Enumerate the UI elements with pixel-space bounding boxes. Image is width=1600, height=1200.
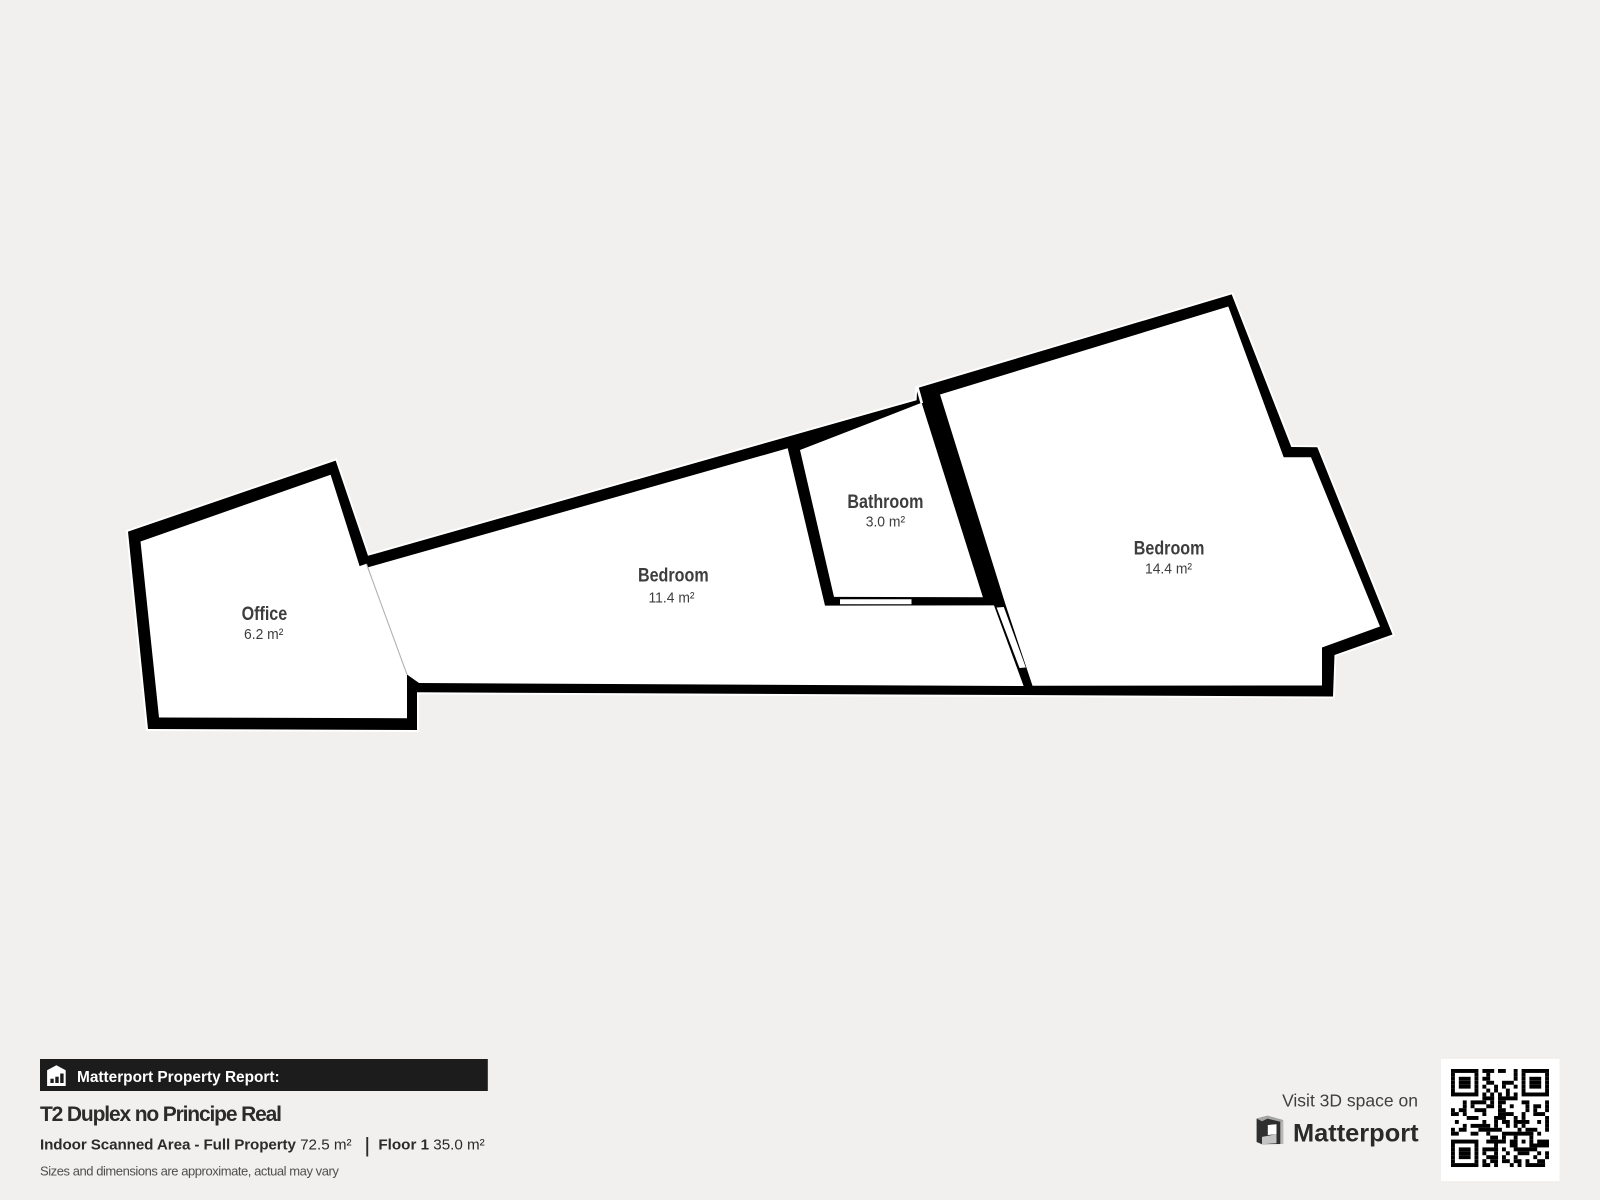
svg-text:Office: Office	[242, 603, 288, 625]
svg-text:Indoor Scanned Area - Full Pro: Indoor Scanned Area - Full Property 72.5…	[40, 1137, 352, 1154]
svg-text:Bedroom: Bedroom	[638, 564, 709, 586]
svg-text:14.4 m²: 14.4 m²	[1145, 561, 1192, 578]
svg-text:Matterport: Matterport	[1293, 1119, 1419, 1147]
svg-text:Floor 1 35.0 m²: Floor 1 35.0 m²	[378, 1137, 484, 1154]
svg-text:3.0 m²: 3.0 m²	[866, 514, 906, 531]
svg-text:Visit 3D space on: Visit 3D space on	[1282, 1091, 1418, 1111]
svg-text:Matterport Property Report:: Matterport Property Report:	[77, 1069, 280, 1086]
svg-text:Bathroom: Bathroom	[847, 491, 923, 513]
svg-text:Bedroom: Bedroom	[1134, 537, 1205, 559]
svg-text:T2 Duplex no Principe Real: T2 Duplex no Principe Real	[40, 1103, 281, 1126]
svg-text:11.4 m²: 11.4 m²	[648, 590, 694, 607]
svg-text:6.2 m²: 6.2 m²	[244, 627, 284, 644]
svg-text:Sizes and dimensions are appro: Sizes and dimensions are approximate, ac…	[40, 1164, 339, 1179]
